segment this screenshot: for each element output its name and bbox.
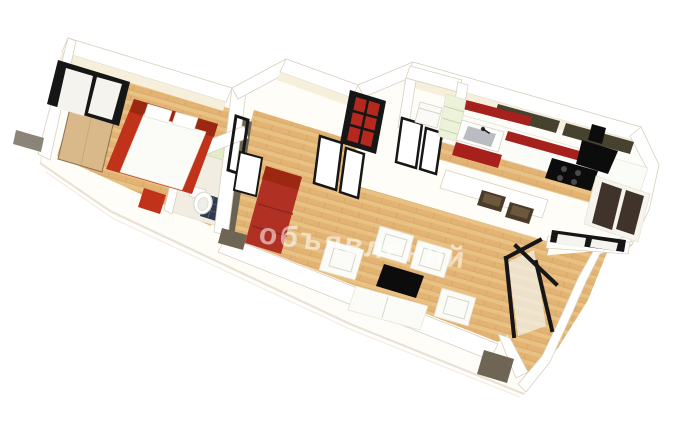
burner-2: [575, 170, 581, 176]
floor-plan-render: объявлений: [0, 0, 700, 422]
screenshot-root: объявлений: [0, 0, 700, 422]
burner-1: [561, 166, 567, 172]
bedroom-door-leaf: [234, 152, 262, 196]
closet-door-leaf-1: [396, 118, 422, 168]
french-door-leaf-1: [314, 136, 342, 190]
burner-4: [571, 179, 577, 185]
left-wall-stub-cap: [13, 130, 44, 152]
burner-3: [557, 175, 563, 181]
